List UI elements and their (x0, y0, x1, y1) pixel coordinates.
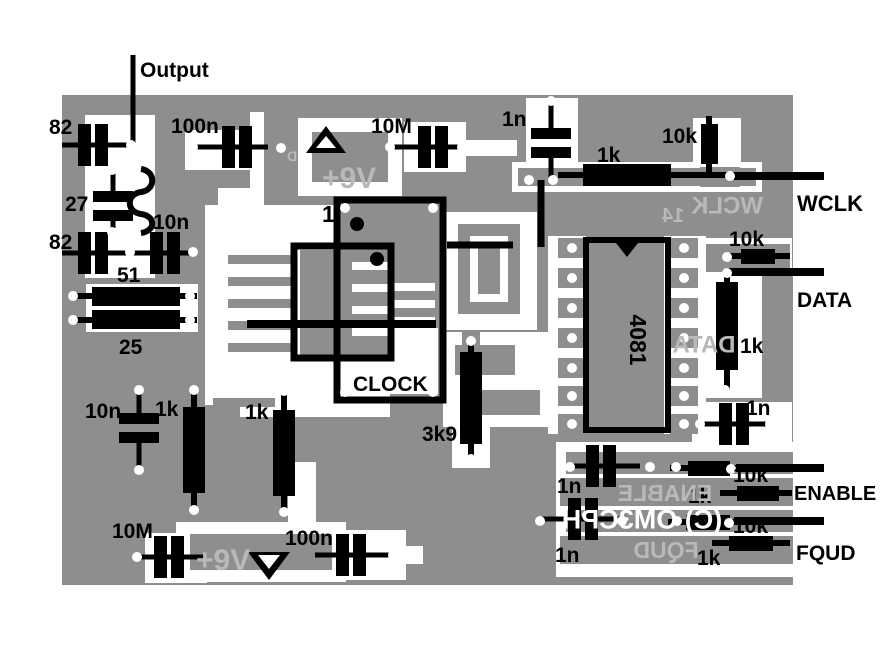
solder-pad (125, 247, 135, 257)
label-enable: ENABLE (794, 483, 876, 505)
solder-pad (279, 507, 289, 517)
label-wclk: WCLK (690, 192, 763, 219)
label-1k: 1k (740, 335, 764, 358)
label-10k: 10k (733, 515, 768, 538)
label-1n: 1n (555, 544, 580, 567)
solder-pad (567, 333, 577, 343)
solder-pad (189, 385, 199, 395)
label-10m: 10M (112, 520, 153, 543)
solder-pad (679, 243, 689, 253)
solder-pad (567, 391, 577, 401)
label-3k9: 3k9 (422, 423, 457, 446)
solder-pad (567, 243, 577, 253)
solder-pad (679, 419, 689, 429)
comb-finger (352, 262, 388, 270)
comb-finger (213, 440, 275, 449)
solder-pad (567, 363, 577, 373)
solder-pad (565, 462, 575, 472)
solder-pad (466, 454, 476, 464)
solder-pad (388, 550, 398, 560)
solder-pad (679, 273, 689, 283)
solder-pad (567, 419, 577, 429)
trace-white (462, 140, 517, 156)
solder-pad (185, 291, 195, 301)
capacitor-plate (95, 232, 108, 274)
label-27: 27 (65, 193, 88, 216)
capacitor-plate (531, 128, 571, 139)
solder-pad (671, 462, 681, 472)
label-25: 25 (119, 336, 143, 359)
label-data: DATA (797, 289, 852, 312)
capacitor-plate (353, 534, 366, 576)
solder-pad (276, 143, 286, 153)
capacitor-plate (95, 124, 108, 166)
label-fqud: FQUD (633, 537, 698, 563)
trace-gray-island (478, 244, 500, 294)
capacitor-plate (93, 191, 133, 202)
label-1k: 1k (155, 398, 179, 421)
solder-pad (567, 273, 577, 283)
solder-pad (134, 465, 144, 475)
solder-pad (548, 175, 558, 185)
solder-pad (188, 247, 198, 257)
solder-pad (428, 387, 438, 397)
resistor-body (92, 287, 180, 306)
solder-pad (107, 227, 117, 237)
resistor-body (460, 352, 482, 444)
capacitor-plate (78, 232, 91, 274)
label-82: 82 (49, 116, 72, 139)
trace-white (395, 546, 423, 564)
label-1n: 1n (746, 397, 771, 420)
pin1-dot (370, 252, 384, 266)
capacitor-plate (586, 445, 599, 487)
label-10n: 10n (153, 211, 189, 234)
solder-pad (679, 363, 689, 373)
label-100n: 100n (171, 115, 219, 138)
solder-pad (189, 505, 199, 515)
resistor-body (688, 461, 730, 476)
solder-pad (385, 142, 395, 152)
label-1k: 1k (697, 547, 721, 570)
label-1n: 1n (502, 108, 527, 131)
comb-finger (393, 300, 435, 308)
solder-pad (645, 462, 655, 472)
comb-finger (228, 299, 293, 308)
solder-pad (546, 96, 556, 106)
pcb-canvas: Output82100n10M1n1k10kWCLK2710n82512510k… (0, 0, 881, 660)
resistor-body (701, 124, 718, 164)
comb-finger (228, 343, 293, 352)
resistor-body (92, 310, 180, 329)
capacitor-plate (154, 536, 167, 578)
solder-pad (340, 203, 350, 213)
solder-pad (679, 391, 689, 401)
pin1-dot (350, 217, 364, 231)
label-4081: 4081 (625, 314, 651, 365)
solder-pad (126, 140, 136, 150)
solder-pad (68, 315, 78, 325)
solder-pad (567, 303, 577, 313)
solder-pad (722, 268, 732, 278)
comb-finger (228, 255, 293, 264)
label-wclk: WCLK (797, 191, 863, 216)
solder-pad (185, 315, 195, 325)
solder-pad (720, 385, 730, 395)
solder-pad (722, 252, 732, 262)
label-82: 82 (49, 231, 72, 254)
label-+9v: +9V (196, 544, 250, 577)
capacitor-plate (435, 126, 448, 168)
capacitor-plate (719, 403, 732, 445)
label-10n: 10n (85, 400, 121, 423)
label-100n: 100n (285, 527, 333, 550)
label-d: D (287, 148, 297, 164)
solder-pad (695, 419, 705, 429)
capacitor-plate (418, 126, 431, 168)
resistor-body (583, 164, 671, 186)
resistor-body (183, 407, 205, 493)
solder-pad (765, 419, 775, 429)
comb-finger (352, 284, 388, 292)
capacitor-plate (78, 124, 91, 166)
capacitor-plate (119, 413, 159, 424)
pcb-layout: Output82100n10M1n1k10kWCLK2710n82512510k… (0, 0, 881, 660)
label-14: 14 (661, 205, 684, 227)
capacitor-plate (603, 445, 616, 487)
solder-pad (132, 552, 142, 562)
solder-pad (107, 165, 117, 175)
solder-pad (466, 336, 476, 346)
comb-finger (352, 306, 388, 314)
label-1: 1 (322, 201, 335, 227)
capacitor-plate (239, 126, 252, 168)
resistor-body (273, 410, 295, 496)
capacitor-plate (150, 232, 163, 274)
solder-pad (679, 303, 689, 313)
label-10m: 10M (371, 115, 412, 138)
capacitor-plate (119, 432, 159, 443)
label-51: 51 (117, 264, 141, 287)
capacitor-plate (171, 536, 184, 578)
label-clock: CLOCK (353, 373, 428, 396)
solder-pad (188, 142, 198, 152)
solder-pad (68, 291, 78, 301)
label-data: DATA (672, 331, 735, 358)
resistor-body (729, 536, 773, 551)
solder-pad (134, 385, 144, 395)
comb-finger (393, 283, 435, 291)
trace-white (250, 112, 264, 195)
solder-pad (340, 387, 350, 397)
resistor-body (741, 249, 775, 264)
capacitor-plate (336, 534, 349, 576)
label--c-om3cph: (C) OM3CPH (562, 504, 723, 534)
capacitor-plate (93, 210, 133, 221)
resistor-body (737, 486, 779, 501)
label-1n: 1n (557, 475, 582, 498)
label-10k: 10k (662, 125, 697, 148)
capacitor-plate (222, 126, 235, 168)
solder-pad (128, 165, 138, 175)
label-fqud: FQUD (796, 542, 856, 565)
solder-pad (524, 175, 534, 185)
capacitor-plate (167, 232, 180, 274)
solder-pad (725, 171, 735, 181)
label-+9v: +9V (322, 162, 376, 195)
capacitor-plate (531, 147, 571, 158)
label-1k: 1k (245, 401, 269, 424)
label-10k: 10k (729, 228, 764, 251)
comb-finger (228, 277, 293, 286)
comb-finger (352, 328, 388, 336)
label-1k: 1k (597, 144, 621, 167)
solder-pad (279, 386, 289, 396)
solder-pad (457, 142, 467, 152)
label-output: Output (140, 59, 209, 82)
label-enable: ENABLE (618, 480, 713, 506)
solder-pad (428, 203, 438, 213)
solder-pad (535, 516, 545, 526)
label-10k: 10k (733, 464, 768, 487)
